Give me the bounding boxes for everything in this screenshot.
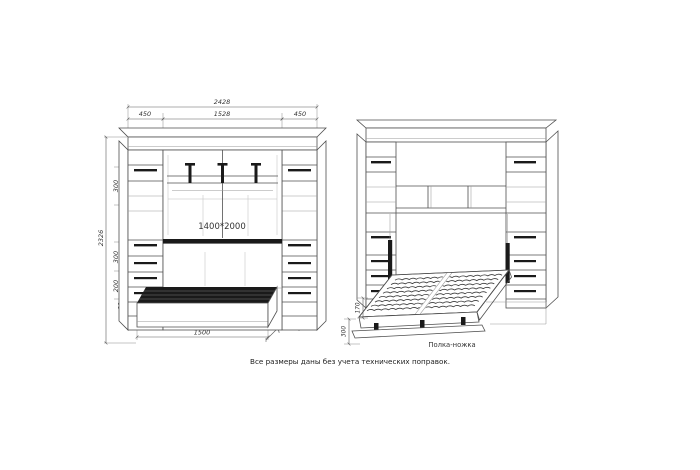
handle-strip [514,161,536,163]
lift-strut [506,243,510,283]
handle-strip [134,244,157,246]
open-view: 170 300 Полка-ножка [342,120,559,349]
handle-strip [288,292,311,294]
technical-drawing-canvas: 2428 450 1528 450 2326 300 300 200 80 [0,0,700,470]
handle-strip [514,275,536,277]
handle-strip [514,236,536,238]
right-pier [282,150,317,330]
right-side-panel [317,141,326,330]
handle-strip [288,169,311,171]
handle-strip [134,262,157,264]
dim-right-section: 450 [294,110,306,118]
dim-total-width: 2428 [214,98,231,106]
drawing-page: 2428 450 1528 450 2326 300 300 200 80 [0,0,700,470]
dim-total-height: 2326 [97,230,105,247]
closed-view: 2428 450 1528 450 2326 300 300 200 80 [97,98,326,343]
handle-strip [288,277,311,279]
lift-strut [388,240,392,280]
right-side-panel [546,131,558,308]
right-pier [506,142,546,308]
closed-view-cabinet: 1400*2000 [119,128,326,330]
left-side-panel [119,141,128,330]
dim-frame-thickness: 170 [356,302,362,313]
handle-strip [134,277,157,279]
handle-strip [288,244,311,246]
dim-leg-height: 300 [342,326,348,337]
dim-center-section: 1528 [214,110,231,118]
footer-note: Все размеры даны без учета технических п… [250,357,450,366]
left-side-panel [357,134,366,308]
cornice [119,128,326,150]
handle-strip [371,236,391,238]
handle-strip [288,262,311,264]
base-bench [137,287,277,327]
shelf-leg-label: Полка-ножка [428,341,475,349]
cornice [357,120,556,142]
dim-left-section: 450 [139,110,151,118]
handle-strip [514,290,536,292]
bed-size-label: 1400*2000 [198,222,246,232]
handle-strip [371,161,391,163]
handle-strip [514,260,536,262]
handle-strip [134,169,157,171]
bed-panel-rail [163,239,282,244]
